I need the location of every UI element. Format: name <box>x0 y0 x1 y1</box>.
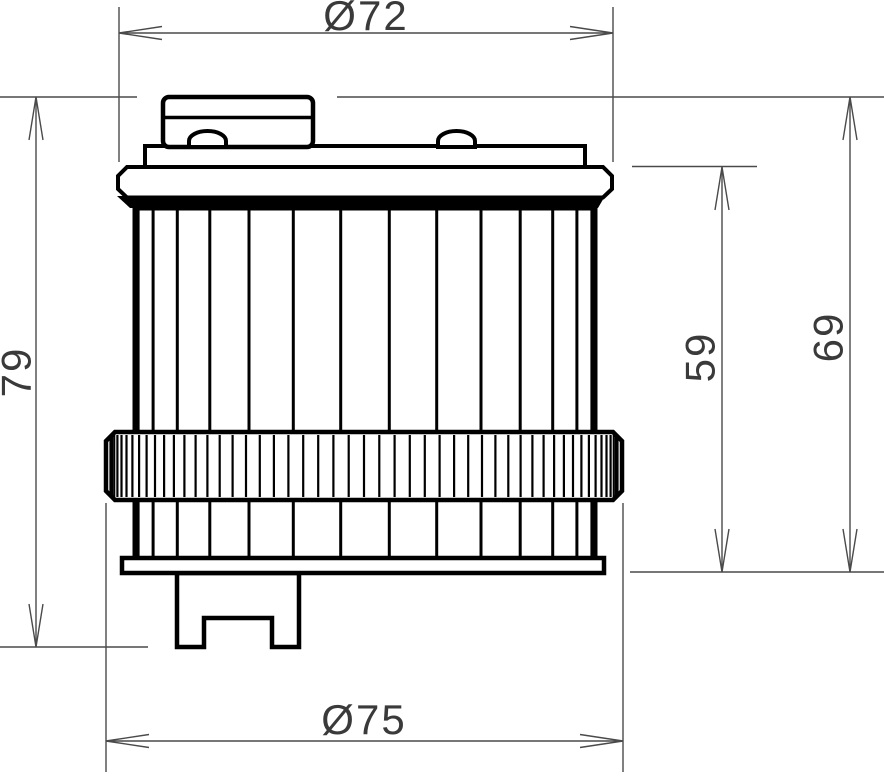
dimension-label-79: 79 <box>0 347 40 398</box>
mounting-foot <box>177 573 299 647</box>
dimension-height-inner: 59 <box>632 167 757 573</box>
dimension-label-59: 59 <box>677 332 724 383</box>
rivet-nub-right <box>438 131 475 147</box>
bottom-plate <box>122 558 604 573</box>
dimension-label-69: 69 <box>805 312 852 363</box>
top-flange <box>118 167 612 198</box>
filter-drawing: Ø72 79 59 69 <box>0 0 884 777</box>
dimension-label-dia72: Ø72 <box>323 0 408 39</box>
rivet-nub-left <box>189 131 226 147</box>
filter-part <box>106 97 622 647</box>
top-cap <box>163 97 313 147</box>
dimension-label-dia75: Ø75 <box>321 696 406 743</box>
filter-element-body <box>135 208 595 559</box>
technical-drawing-canvas: Ø72 79 59 69 <box>0 0 884 777</box>
